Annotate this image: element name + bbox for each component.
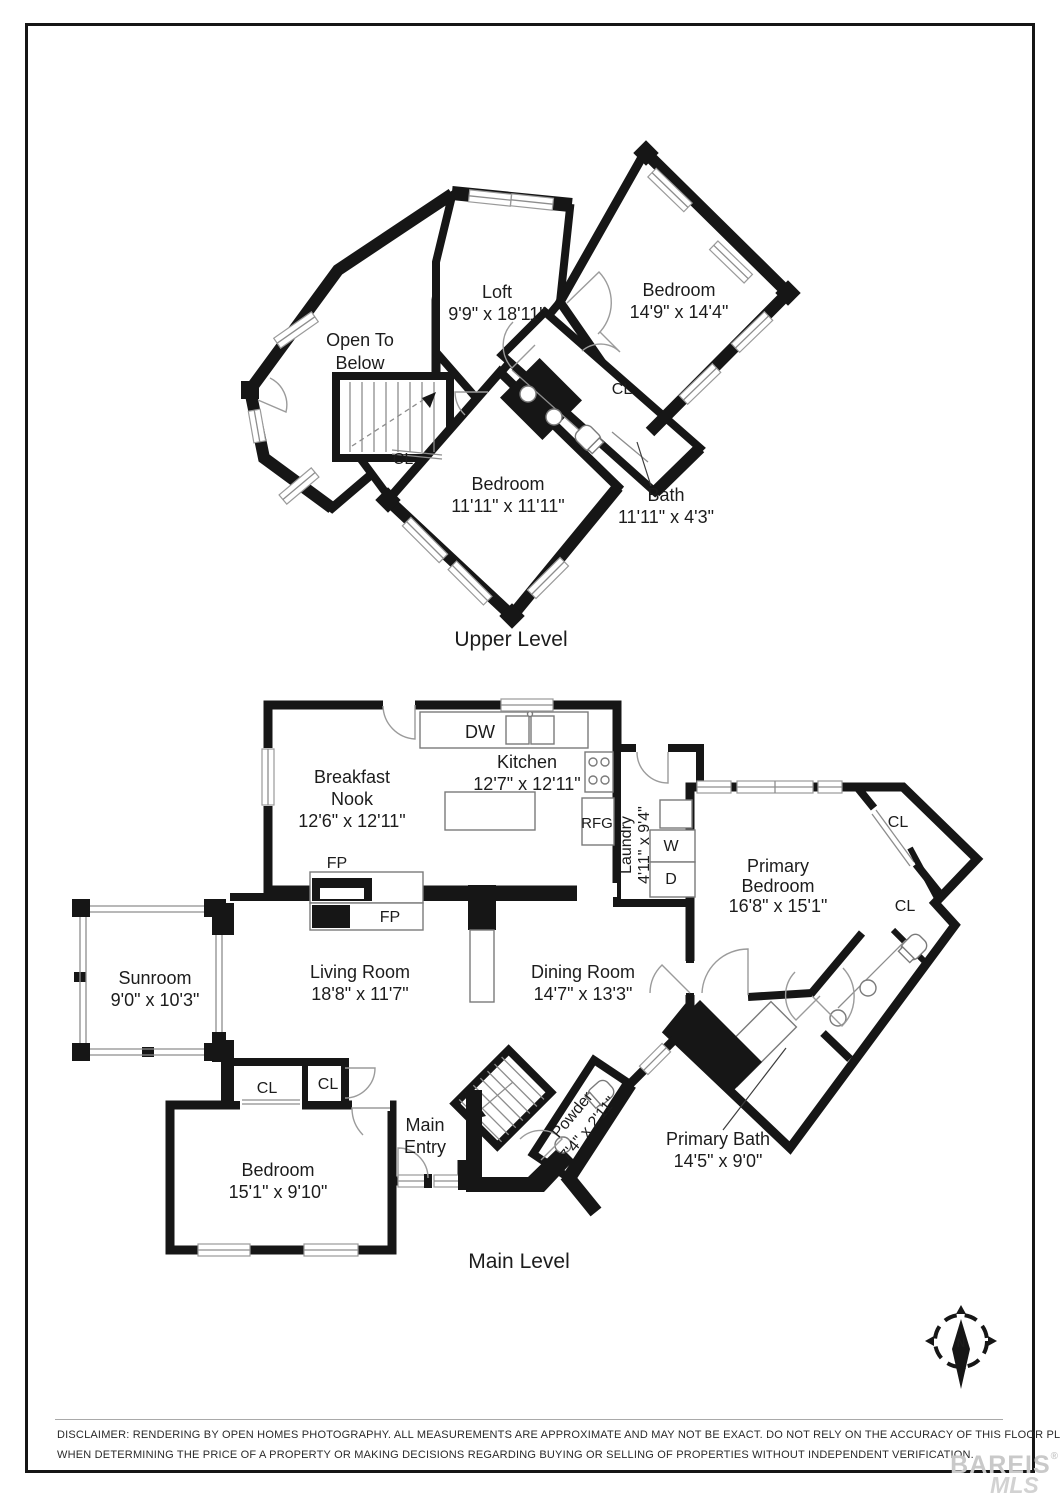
living-room-label: Living Room <box>310 962 410 982</box>
floor-plan-canvas: Loft 9'9" x 18'11" Bedroom 14'9" x 14'4"… <box>0 0 1060 1498</box>
breakfast-nook-line2: Nook <box>331 789 374 809</box>
main-closet3-label: CL <box>257 1080 278 1097</box>
main-entry-line1: Main <box>405 1115 444 1135</box>
dining-room-label: Dining Room <box>531 962 635 982</box>
sunroom-dims: 9'0" x 10'3" <box>111 990 200 1010</box>
kitchen-island <box>445 792 535 830</box>
loft-dims: 9'9" x 18'11" <box>448 304 545 324</box>
sunroom-label: Sunroom <box>118 968 191 988</box>
main-level-title: Main Level <box>468 1250 570 1273</box>
bareis-mls-logo: BAREIS® MLS <box>950 1453 1058 1494</box>
upper-bedroom1-label: Bedroom <box>642 280 715 300</box>
primary-bedroom-dims: 16'8" x 15'1" <box>729 896 828 916</box>
laundry-dims: 4'11" x 9'4" <box>636 806 653 884</box>
refrigerator-label: RFG <box>581 815 613 832</box>
primary-bath-label: Primary Bath <box>666 1129 770 1149</box>
primary-bedroom-line2: Bedroom <box>741 876 814 896</box>
disclaimer-line2: WHEN DETERMINING THE PRICE OF A PROPERTY… <box>57 1446 1007 1466</box>
breakfast-nook-dims: 12'6" x 12'11" <box>298 811 405 831</box>
main-bedroom-label: Bedroom <box>241 1160 314 1180</box>
loft-label: Loft <box>482 282 512 302</box>
fireplace-label-bottom: FP <box>380 909 400 926</box>
laundry-label: Laundry <box>618 816 635 874</box>
upper-bath-dims: 11'11" x 4'3" <box>618 507 714 527</box>
kitchen-label: Kitchen <box>497 752 557 772</box>
disclaimer-line1: DISCLAIMER: RENDERING BY OPEN HOMES PHOT… <box>57 1426 1007 1446</box>
main-closet1-label: CL <box>888 814 909 831</box>
compass-icon: N <box>925 1305 997 1389</box>
main-closet4-label: CL <box>318 1076 339 1093</box>
disclaimer-divider <box>55 1419 1003 1420</box>
fireplace-label-top: FP <box>327 855 347 872</box>
primary-bath-dims: 14'5" x 9'0" <box>674 1151 763 1171</box>
disclaimer-text: DISCLAIMER: RENDERING BY OPEN HOMES PHOT… <box>57 1426 1007 1466</box>
living-room-dims: 18'8" x 11'7" <box>311 984 408 1004</box>
main-level-plan: Breakfast Nook 12'6" x 12'11" DW Kitchen… <box>72 698 977 1273</box>
primary-bedroom-line1: Primary <box>747 856 809 876</box>
open-to-below-line2: Below <box>335 353 385 373</box>
upper-level-title: Upper Level <box>454 628 567 651</box>
upper-bedroom2-dims: 11'11" x 11'11" <box>451 496 564 516</box>
upper-closet2-label: CL <box>612 381 633 398</box>
kitchen-dims: 12'7" x 12'11" <box>473 774 580 794</box>
open-to-below-line1: Open To <box>326 330 394 350</box>
main-closet2-label: CL <box>895 898 916 915</box>
dryer-label: D <box>665 871 677 888</box>
upper-bedroom2-label: Bedroom <box>471 474 544 494</box>
upper-level-plan: Loft 9'9" x 18'11" Bedroom 14'9" x 14'4"… <box>241 140 801 651</box>
fireplace <box>310 872 423 930</box>
compass-north-label: N <box>957 1336 966 1350</box>
dining-room-dims: 14'7" x 13'3" <box>534 984 633 1004</box>
main-bedroom-dims: 15'1" x 9'10" <box>229 1182 328 1202</box>
registered-mark: ® <box>1051 1451 1058 1462</box>
upper-closet1-label: CL <box>393 451 414 468</box>
main-entry-line2: Entry <box>404 1137 446 1157</box>
washer-label: W <box>663 838 679 855</box>
main-primary-suite-shell <box>668 787 977 1148</box>
kitchen-counter <box>420 712 588 749</box>
upper-bath-label: Bath <box>647 485 684 505</box>
floor-plan-page: Loft 9'9" x 18'11" Bedroom 14'9" x 14'4"… <box>0 0 1060 1498</box>
breakfast-nook-line1: Breakfast <box>314 767 390 787</box>
stove <box>585 752 613 792</box>
upper-bedroom1-dims: 14'9" x 14'4" <box>630 302 729 322</box>
dishwasher-label: DW <box>465 722 495 742</box>
